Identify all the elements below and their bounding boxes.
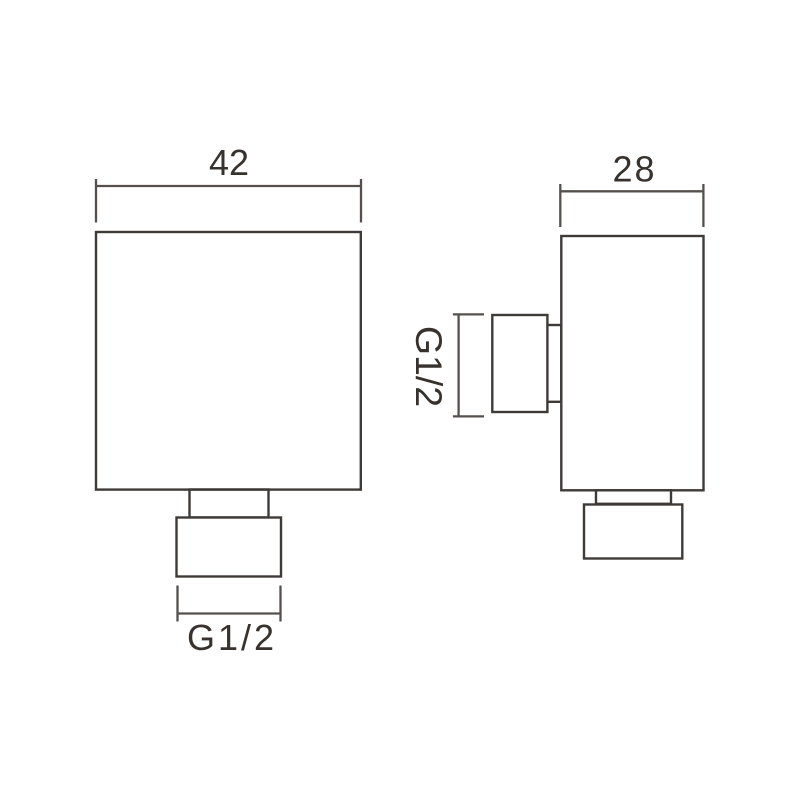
svg-text:G1/2: G1/2	[187, 617, 277, 658]
svg-text:42: 42	[209, 142, 249, 183]
svg-text:28: 28	[612, 149, 656, 190]
svg-text:G1/2: G1/2	[408, 326, 450, 407]
